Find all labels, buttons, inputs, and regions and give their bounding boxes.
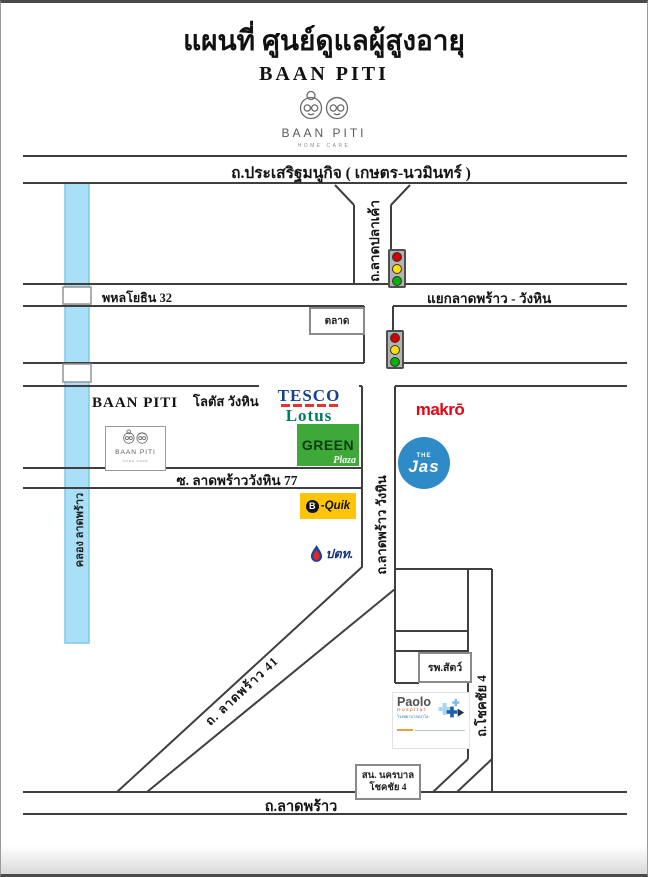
baan-piti-map-logo: BAAN PITI HOME CARE bbox=[105, 426, 166, 471]
market-box: ตลาด bbox=[309, 307, 365, 335]
paolo-tagline-rule bbox=[397, 729, 465, 731]
green-light-icon bbox=[392, 276, 402, 286]
paolo-hospital-logo: Paolo Hospital โรงพยาบาลเปาโล bbox=[392, 692, 470, 749]
the-jas-logo: THE Jas bbox=[398, 437, 450, 489]
b-quik-logo: B -Quik bbox=[300, 493, 356, 519]
logo-tagline: HOME CARE bbox=[123, 459, 149, 463]
b-quik-b-icon: B bbox=[306, 500, 319, 513]
baan-piti-map-label: BAAN PITI bbox=[92, 395, 178, 412]
road-label-prasert: ถ.ประเสริฐมนูกิจ ( เกษตร-นวมินทร์ ) bbox=[186, 160, 516, 185]
police-label-line2: โชคชัย 4 bbox=[369, 782, 406, 794]
police-station-box: สน. นครบาล โชคชัย 4 bbox=[355, 764, 421, 800]
yellow-light-icon bbox=[390, 345, 400, 355]
paolo-wordmark: Paolo bbox=[397, 696, 431, 708]
yellow-light-icon bbox=[392, 264, 402, 274]
lotus-thai-label: โลตัส วังหิน bbox=[193, 391, 259, 412]
traffic-light-south bbox=[386, 330, 404, 369]
map-page: แผนที่ ศูนย์ดูแลผู้สูงอายุ BAAN PITI BAA… bbox=[0, 0, 648, 877]
tesco-wordmark: TESCO bbox=[278, 388, 341, 403]
logo-wordmark: BAAN PITI bbox=[115, 449, 156, 456]
ptt-flame-icon bbox=[310, 545, 323, 562]
road-label-soi-77: ซ. ลาดพร้าววังหิน 77 bbox=[153, 469, 321, 491]
road-label-chokchai-4: ถ.โชคชัย 4 bbox=[473, 656, 489, 756]
lotus-wordmark: Lotus bbox=[286, 408, 333, 423]
green-light-icon bbox=[390, 357, 400, 367]
jas-wordmark: Jas bbox=[408, 459, 439, 474]
paolo-thai-text: โรงพยาบาลเปาโล bbox=[397, 714, 431, 720]
red-light-icon bbox=[392, 252, 402, 262]
road-label-lat-pla-khao: ถ.ลาดปลาเค้า bbox=[366, 185, 382, 297]
ptt-logo: ปตท. bbox=[306, 540, 357, 567]
green-plaza-logo: GREEN Plaza bbox=[297, 424, 359, 466]
road-lines bbox=[23, 156, 627, 814]
vet-hospital-label: รพ.สัตว์ bbox=[428, 659, 462, 676]
elderly-faces-icon bbox=[124, 430, 148, 443]
red-light-icon bbox=[390, 333, 400, 343]
market-label: ตลาด bbox=[325, 314, 350, 329]
b-quik-wordmark: -Quik bbox=[321, 500, 350, 512]
traffic-light-north bbox=[388, 249, 406, 288]
vet-hospital-box: รพ.สัตว์ bbox=[418, 652, 472, 683]
road-label-phahonyothin-32: พหลโยธิน 32 bbox=[102, 288, 172, 308]
road-label-lat-phrao-wang-hin: ถ.ลาดพร้าว วังหิน bbox=[373, 459, 389, 591]
plaza-wordmark: Plaza bbox=[333, 455, 356, 466]
label-intersection: แยกลาดพร้าว - วังหิน bbox=[427, 287, 551, 309]
makro-logo: makrō bbox=[407, 396, 473, 423]
tesco-lotus-logo: TESCO Lotus bbox=[259, 385, 359, 425]
police-label-line1: สน. นครบาล bbox=[362, 770, 414, 782]
label-khlong-lat-phrao: คลอง ลาดพร้าว bbox=[71, 474, 87, 586]
green-wordmark: GREEN bbox=[302, 437, 354, 453]
ptt-wordmark: ปตท. bbox=[326, 544, 354, 564]
paolo-cross-icon bbox=[433, 696, 465, 726]
